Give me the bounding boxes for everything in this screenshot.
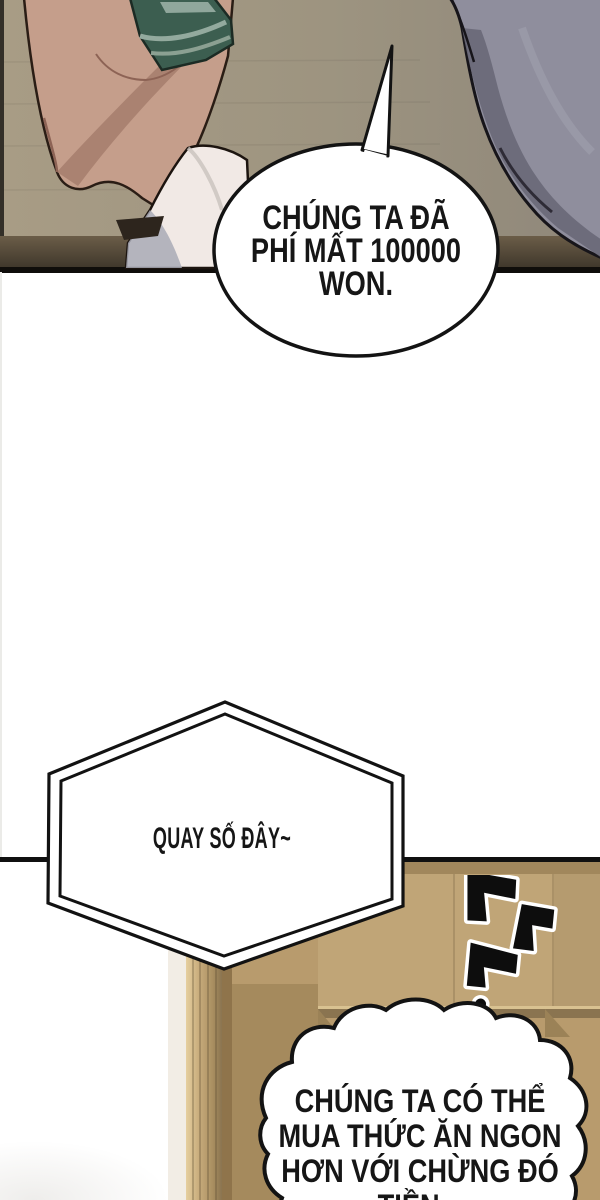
bubble-top-line-3: WON. [212, 268, 500, 301]
cloud-line-2: MUA THỨC ĂN NGON [242, 1119, 599, 1154]
hexagon-bubble-text: QUAY SỐ ĐÂY~ [144, 824, 300, 854]
cloud-line-1: CHÚNG TA CÓ THỂ [242, 1084, 599, 1119]
hexagon-line: QUAY SỐ ĐÂY~ [144, 824, 300, 854]
cloud-line-3: HƠN VỚI CHỪNG ĐÓ [242, 1154, 599, 1189]
bubble-top-line-2: PHÍ MẤT 100000 [212, 235, 500, 268]
wall-left-edge [0, 0, 4, 240]
bubble-top-text: CHÚNG TA ĐÃ PHÍ MẤT 100000 WON. [212, 202, 500, 301]
bubble-tail [362, 46, 392, 156]
comic-page: CHÚNG TA ĐÃ PHÍ MẤT 100000 WON. [0, 0, 600, 1200]
speech-bubble-top [180, 30, 510, 362]
cloud-line-4: TIỀN... [242, 1189, 599, 1200]
cloud-bubble-text: CHÚNG TA CÓ THỂ MUA THỨC ĂN NGON HƠN VỚI… [242, 1084, 599, 1200]
page-left-scan-line [0, 272, 2, 858]
bubble-top-line-1: CHÚNG TA ĐÃ [212, 202, 500, 235]
wall-corner-shadow [0, 1140, 170, 1200]
